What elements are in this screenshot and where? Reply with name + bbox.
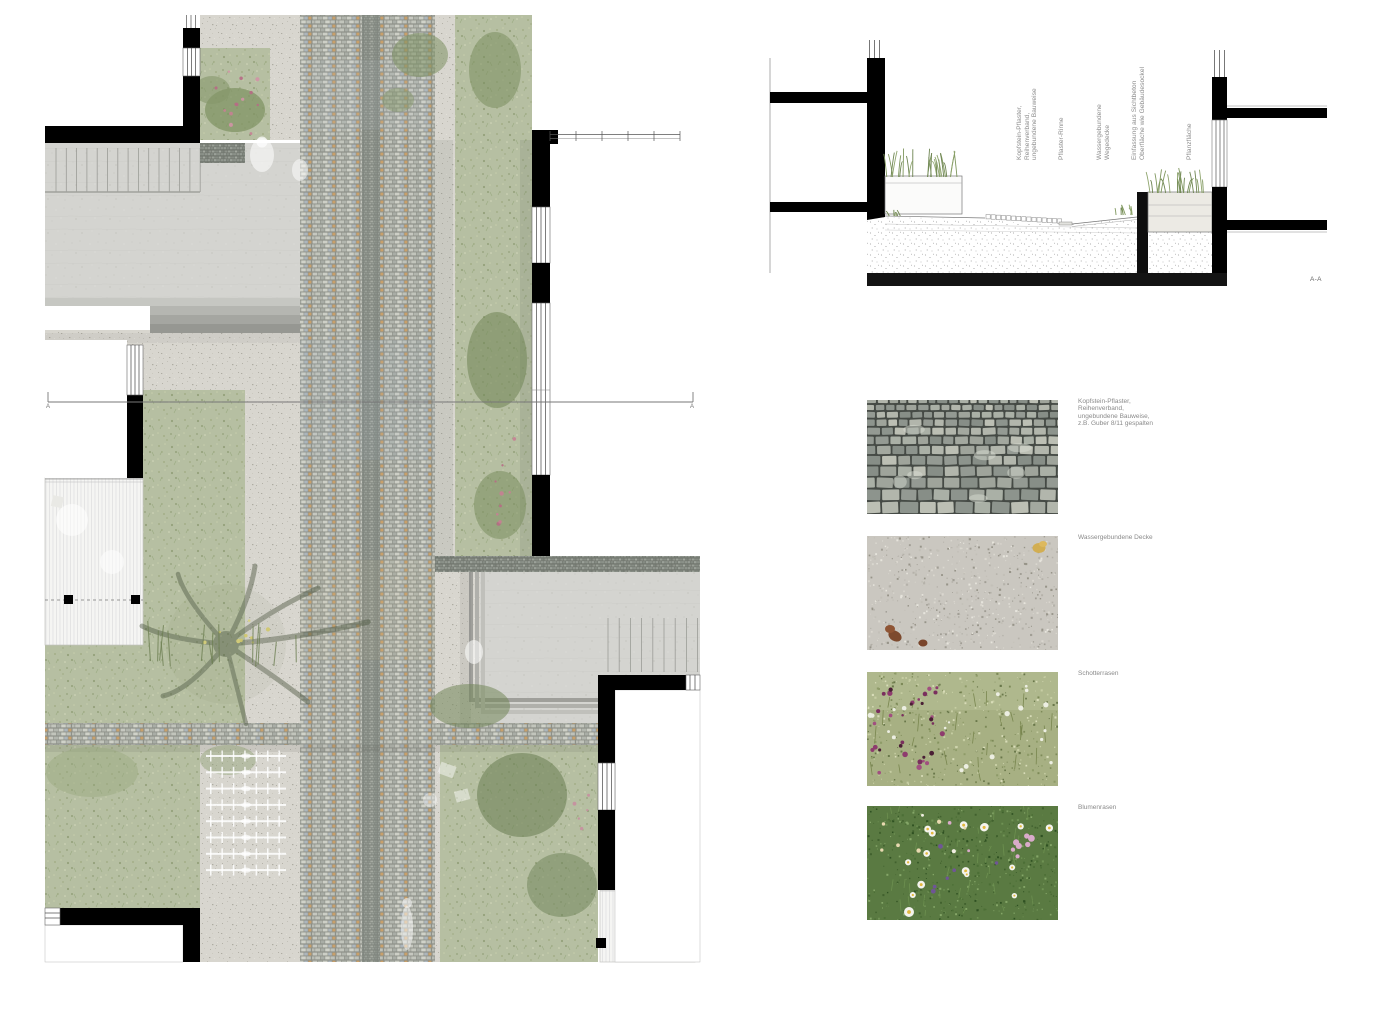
legend-photo-blumenrasen	[867, 806, 1058, 920]
section-ground-fill	[867, 217, 1137, 277]
cobble-path-vertical	[300, 15, 435, 962]
tree-symbol	[142, 566, 368, 724]
section-concrete-edging	[1137, 192, 1148, 277]
window	[532, 207, 550, 263]
legend-photo-schotterrasen	[867, 672, 1058, 786]
fence-line	[550, 131, 680, 141]
building-top-left	[45, 15, 200, 143]
section-label-edging: Einfassung aus Sichtbeton Oberfläche wie…	[1131, 67, 1146, 160]
section-label-pavement: Kopfstein-Pflaster, Reihenverband, ungeb…	[1016, 88, 1039, 160]
legend-label-blumenrasen: Blumenrasen	[1078, 804, 1116, 811]
window	[45, 908, 60, 925]
cobble-band-horizontal	[45, 723, 603, 745]
section-gutter	[1059, 222, 1072, 225]
section-plants	[884, 148, 1203, 216]
bike-parking-symbols	[206, 751, 286, 876]
legend-photo-kopfstein	[867, 400, 1058, 514]
legend-label-kopfstein: Kopfstein-Pflaster, Reihenverband, ungeb…	[1078, 398, 1153, 428]
building-bottom-left	[45, 908, 200, 962]
window	[127, 345, 143, 395]
building-bottom-right	[598, 675, 700, 962]
window	[532, 303, 550, 475]
legend-photo-wassergebundene-decke	[867, 536, 1058, 650]
plan-section-line	[48, 392, 693, 402]
plan-meadow-areas	[45, 15, 598, 962]
section-planter-right	[1148, 192, 1212, 232]
section-mark-a-left: A	[46, 404, 50, 410]
section-base-slab	[867, 273, 1227, 286]
plan-gravel-areas	[45, 15, 480, 962]
legend-label-schotterrasen: Schotterrasen	[1078, 670, 1118, 677]
window	[598, 763, 615, 810]
building-right	[532, 130, 680, 556]
shadows	[45, 140, 603, 752]
section-planter-left	[885, 176, 962, 214]
window	[183, 48, 200, 76]
section-mark-a-right: A	[690, 404, 694, 410]
section-drawing	[770, 40, 1327, 286]
drawing-sheet: Kopfstein-Pflaster, Reihenverband, ungeb…	[0, 0, 1400, 1024]
paving-gutter	[362, 15, 380, 962]
deck-left	[45, 478, 143, 645]
legend-label-wassergebundene-decke: Wassergebundene Decke	[1078, 534, 1153, 541]
section-cobble-ticks	[986, 215, 1062, 224]
planting-clusters	[46, 32, 597, 917]
deck-bottom-right	[596, 884, 700, 962]
section-label-path-surface: Wassergebundene Wegedecke	[1096, 104, 1111, 160]
figure-ghosts	[250, 137, 483, 951]
building-mid-left	[45, 340, 143, 478]
section-label-planting: Pflanzfläche	[1186, 123, 1194, 160]
lower-plaza	[435, 556, 700, 725]
upper-plaza	[45, 143, 310, 333]
section-mark-aa: A-A	[1310, 276, 1322, 283]
section-label-gutter: Pflaster-Rinne	[1058, 117, 1066, 160]
